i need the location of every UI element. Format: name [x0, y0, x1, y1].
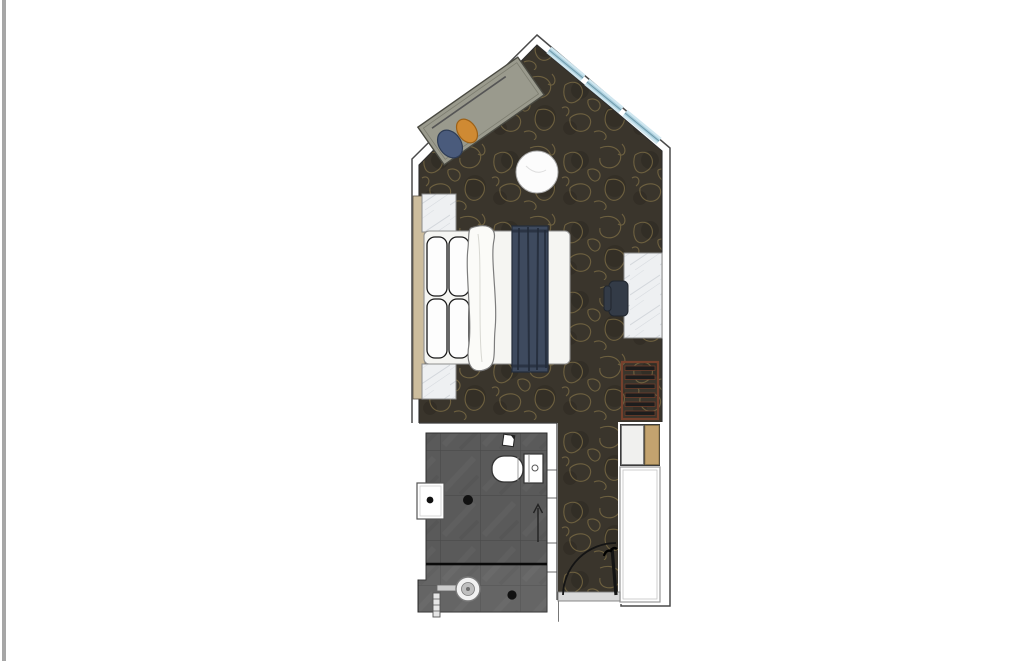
bed-pillow — [449, 237, 469, 296]
entry-door-threshold — [558, 592, 620, 601]
round-side-table — [516, 151, 558, 193]
floor-drain — [463, 495, 473, 505]
wash-basin — [417, 483, 444, 519]
toilet-paper-holder — [502, 434, 514, 446]
minibar-right-door — [645, 426, 659, 465]
bed-pillow — [427, 299, 447, 358]
shower-drain — [507, 590, 516, 599]
nightstand-top — [422, 194, 456, 232]
minibar-left-door — [622, 426, 644, 465]
nightstand-bottom — [422, 364, 456, 399]
bed-pillow — [449, 299, 469, 358]
bed-runner — [512, 226, 548, 372]
toilet — [492, 454, 543, 483]
desk-chair — [604, 281, 628, 316]
wardrobe-closet — [620, 467, 660, 602]
bed-duvet-fold — [467, 226, 495, 371]
bed-pillow — [427, 237, 447, 296]
floor-plan-svg — [0, 0, 1024, 661]
minibar-unit — [620, 424, 660, 466]
wall-desk — [624, 253, 662, 338]
floor-plan-page — [0, 0, 1024, 661]
shower-rail — [433, 593, 440, 617]
bathroom — [403, 423, 558, 622]
